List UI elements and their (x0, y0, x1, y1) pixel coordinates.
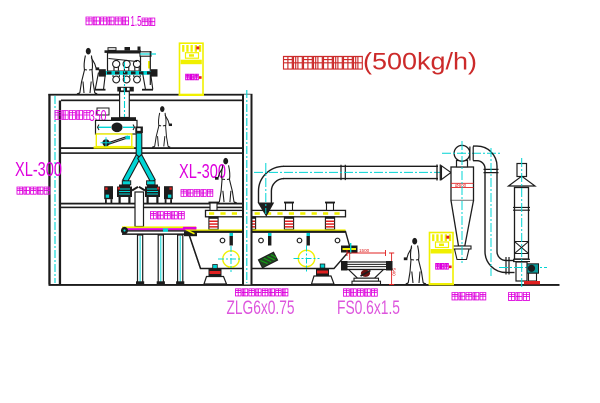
svg-text:XL-300: XL-300 (15, 159, 62, 181)
svg-text:1.5: 1.5 (131, 13, 142, 30)
svg-text:Ø600: Ø600 (455, 183, 467, 188)
svg-text:XL-300: XL-300 (179, 161, 226, 183)
svg-text:1500: 1500 (359, 248, 370, 253)
svg-text:ZLG6x0.75: ZLG6x0.75 (227, 298, 295, 319)
svg-text:(500kg/h): (500kg/h) (363, 49, 477, 76)
svg-text:FS0.6x1.5: FS0.6x1.5 (337, 298, 400, 319)
